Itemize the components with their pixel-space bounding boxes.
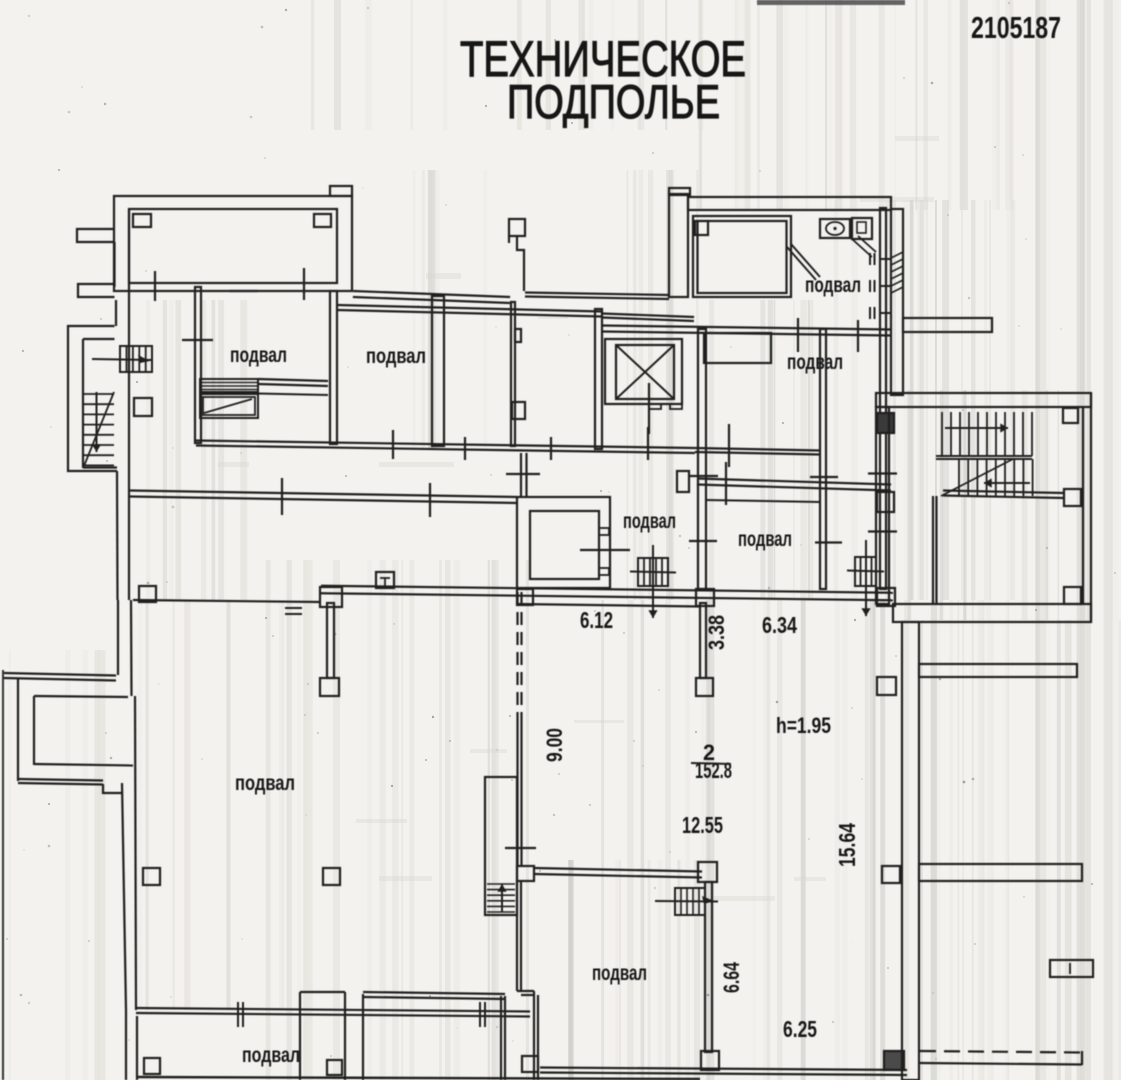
svg-text:12.55: 12.55 (682, 812, 723, 838)
svg-text:2105187: 2105187 (971, 10, 1061, 45)
svg-text:подвал: подвал (235, 772, 295, 795)
svg-text:6.12: 6.12 (580, 607, 613, 633)
svg-text:подвал: подвал (738, 528, 792, 551)
svg-text:15.64: 15.64 (834, 823, 860, 867)
svg-text:9.00: 9.00 (542, 728, 567, 762)
svg-text:3.38: 3.38 (704, 615, 729, 650)
svg-text:6.64: 6.64 (719, 961, 744, 993)
svg-text:6.34: 6.34 (762, 612, 797, 638)
svg-text:2: 2 (703, 740, 715, 765)
svg-text:подвал: подвал (242, 1044, 300, 1067)
svg-text:подвал: подвал (230, 344, 287, 367)
svg-text:подвал: подвал (787, 351, 843, 374)
svg-text:подвал: подвал (592, 962, 647, 985)
svg-text:6.25: 6.25 (783, 1016, 817, 1042)
svg-text:h=1.95: h=1.95 (776, 713, 831, 738)
svg-text:подвал: подвал (623, 510, 676, 533)
svg-text:подвал: подвал (366, 345, 426, 368)
svg-text:ПОДПОЛЬЕ: ПОДПОЛЬЕ (507, 75, 720, 128)
